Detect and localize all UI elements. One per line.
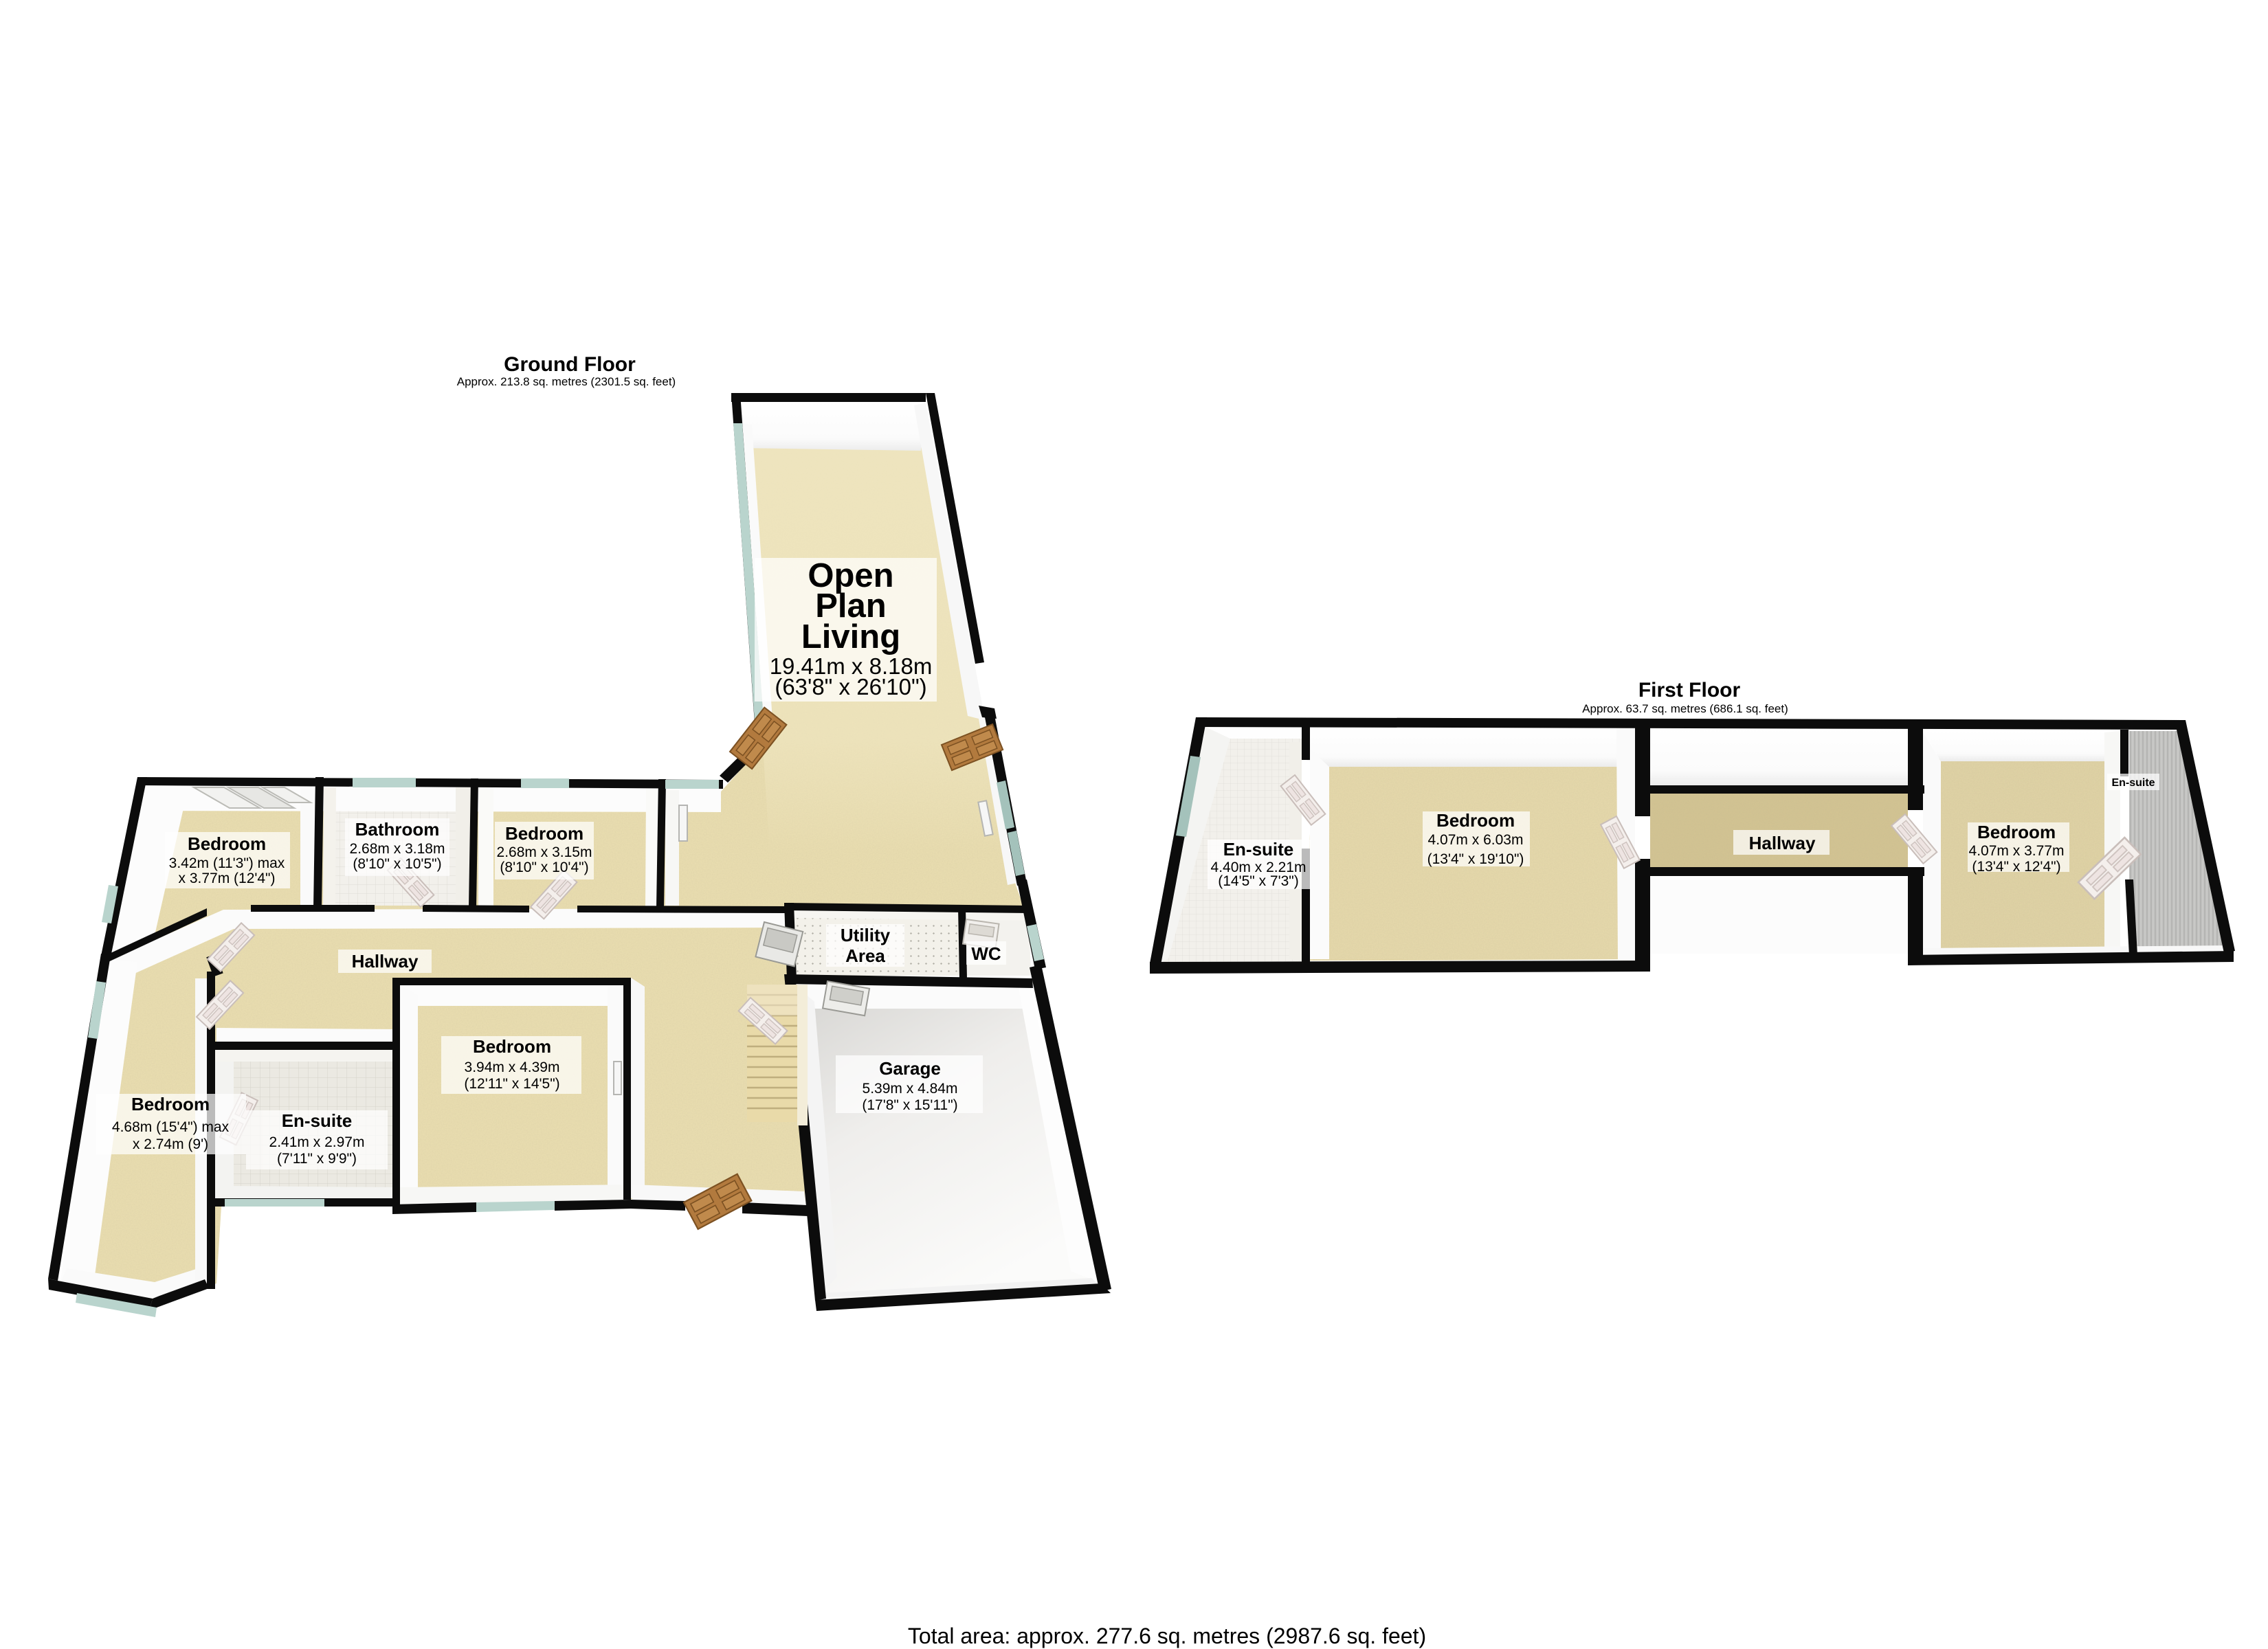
svg-text:(63'8" x 26'10"): (63'8" x 26'10") <box>775 674 926 699</box>
svg-text:4.07m x 3.77m: 4.07m x 3.77m <box>1969 843 2065 859</box>
svg-text:Garage: Garage <box>879 1058 941 1079</box>
svg-text:First Floor: First Floor <box>1638 679 1741 702</box>
svg-text:Bedroom: Bedroom <box>1977 822 2056 842</box>
svg-text:En-suite: En-suite <box>2111 777 2155 789</box>
svg-text:(12'11" x 14'5"): (12'11" x 14'5") <box>464 1076 559 1092</box>
svg-text:Ground Floor: Ground Floor <box>504 353 636 376</box>
svg-text:Total area: approx. 277.6 sq.: Total area: approx. 277.6 sq. metres (29… <box>908 1624 1426 1648</box>
svg-text:Utility: Utility <box>841 925 891 945</box>
svg-text:2.41m x 2.97m: 2.41m x 2.97m <box>269 1134 365 1150</box>
svg-text:(8'10" x 10'5"): (8'10" x 10'5") <box>353 856 441 872</box>
svg-text:Approx. 213.8 sq. metres (2301: Approx. 213.8 sq. metres (2301.5 sq. fee… <box>457 375 676 388</box>
svg-text:Bathroom: Bathroom <box>355 819 440 840</box>
svg-text:Area: Area <box>845 945 885 966</box>
svg-text:x 2.74m (9'): x 2.74m (9') <box>133 1136 208 1152</box>
svg-text:x 3.77m (12'4"): x 3.77m (12'4") <box>178 871 275 886</box>
svg-text:Living: Living <box>801 618 900 655</box>
svg-text:3.94m x 4.39m: 3.94m x 4.39m <box>465 1059 560 1075</box>
svg-text:Bedroom: Bedroom <box>131 1094 210 1114</box>
svg-text:Bedroom: Bedroom <box>188 833 266 854</box>
svg-text:4.07m x 6.03m: 4.07m x 6.03m <box>1428 832 1524 848</box>
svg-text:5.39m x 4.84m: 5.39m x 4.84m <box>863 1081 958 1097</box>
svg-text:Hallway: Hallway <box>352 951 419 972</box>
svg-text:Bedroom: Bedroom <box>1436 810 1515 831</box>
svg-text:3.42m (11'3") max: 3.42m (11'3") max <box>169 855 285 871</box>
svg-text:(7'11" x 9'9"): (7'11" x 9'9") <box>277 1151 357 1167</box>
svg-text:2.68m x 3.15m: 2.68m x 3.15m <box>497 844 592 860</box>
svg-text:En-suite: En-suite <box>282 1110 353 1131</box>
svg-text:4.68m (15'4") max: 4.68m (15'4") max <box>112 1119 230 1135</box>
svg-text:Hallway: Hallway <box>1749 833 1816 853</box>
svg-text:Bedroom: Bedroom <box>505 823 583 844</box>
svg-text:2.68m x 3.18m: 2.68m x 3.18m <box>350 841 445 857</box>
svg-text:(14'5" x 7'3"): (14'5" x 7'3") <box>1218 873 1298 889</box>
svg-text:(17'8" x 15'11"): (17'8" x 15'11") <box>862 1097 957 1113</box>
svg-text:Bedroom: Bedroom <box>473 1036 551 1057</box>
svg-text:(8'10" x 10'4"): (8'10" x 10'4") <box>500 860 588 875</box>
svg-text:Approx. 63.7 sq. metres (686.1: Approx. 63.7 sq. metres (686.1 sq. feet) <box>1582 702 1788 715</box>
svg-text:WC: WC <box>971 943 1001 964</box>
svg-text:(13'4" x 19'10"): (13'4" x 19'10") <box>1427 851 1524 867</box>
svg-text:En-suite: En-suite <box>1223 839 1294 860</box>
svg-text:(13'4" x 12'4"): (13'4" x 12'4") <box>1972 859 2060 875</box>
